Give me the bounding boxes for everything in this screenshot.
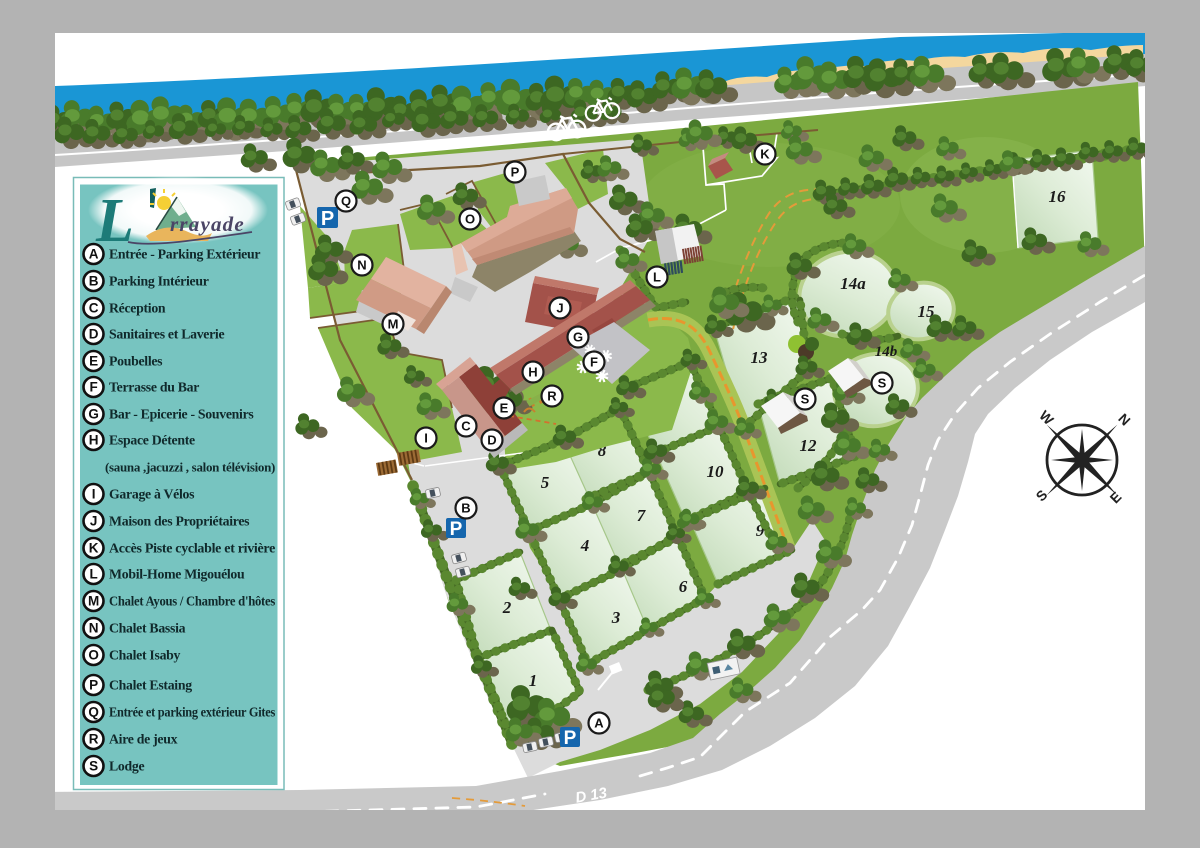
svg-text:I: I bbox=[92, 487, 95, 502]
svg-text:Bar - Epicerie - Souvenirs: Bar - Epicerie - Souvenirs bbox=[109, 407, 254, 422]
svg-text:12: 12 bbox=[800, 436, 818, 455]
svg-text:Maison des Propriétaires: Maison des Propriétaires bbox=[109, 514, 250, 529]
svg-text:Chalet Estaing: Chalet Estaing bbox=[109, 678, 192, 693]
svg-text:6: 6 bbox=[679, 577, 688, 596]
svg-text:F: F bbox=[90, 380, 98, 395]
svg-text:5: 5 bbox=[541, 473, 550, 492]
svg-text:P: P bbox=[564, 728, 577, 749]
svg-text:13: 13 bbox=[751, 348, 769, 367]
svg-text:3: 3 bbox=[611, 608, 621, 627]
svg-text:P: P bbox=[321, 208, 334, 230]
svg-text:10: 10 bbox=[707, 462, 725, 481]
svg-text:Mobil-Home Migouélou: Mobil-Home Migouélou bbox=[109, 567, 245, 582]
svg-text:P: P bbox=[511, 165, 520, 180]
svg-text:Terrasse du Bar: Terrasse du Bar bbox=[109, 380, 199, 395]
svg-text:Chalet Bassia: Chalet Bassia bbox=[109, 621, 186, 636]
svg-text:O: O bbox=[88, 648, 98, 663]
svg-text:R: R bbox=[89, 732, 99, 747]
svg-text:A: A bbox=[89, 247, 99, 262]
svg-text:J: J bbox=[556, 301, 563, 316]
svg-text:Poubelles: Poubelles bbox=[109, 354, 163, 369]
svg-text:N: N bbox=[357, 258, 366, 273]
svg-text:Q: Q bbox=[341, 194, 351, 209]
svg-text:2: 2 bbox=[502, 598, 512, 617]
svg-text:J: J bbox=[90, 514, 97, 529]
svg-text:Sanitaires et Laverie: Sanitaires et Laverie bbox=[109, 327, 224, 342]
svg-text:16: 16 bbox=[1049, 187, 1067, 206]
svg-text:P: P bbox=[89, 678, 98, 693]
svg-text:Aire de jeux: Aire de jeux bbox=[109, 732, 178, 747]
svg-text:Lodge: Lodge bbox=[109, 759, 144, 774]
svg-text:Chalet Isaby: Chalet Isaby bbox=[109, 648, 181, 663]
svg-text:N: N bbox=[89, 621, 98, 636]
svg-text:B: B bbox=[89, 274, 99, 289]
svg-text:S: S bbox=[878, 376, 887, 391]
svg-text:K: K bbox=[760, 147, 770, 162]
svg-text:L: L bbox=[90, 567, 98, 582]
svg-text:Entrée et parking extérieur Gi: Entrée et parking extérieur Gites bbox=[109, 705, 276, 720]
svg-text:E: E bbox=[500, 401, 509, 416]
svg-text:O: O bbox=[465, 212, 475, 227]
svg-text:I: I bbox=[424, 431, 428, 446]
svg-text:E: E bbox=[89, 354, 98, 369]
svg-text:A: A bbox=[594, 716, 604, 731]
svg-text:K: K bbox=[89, 541, 99, 556]
svg-text:Q: Q bbox=[88, 705, 98, 720]
svg-text:(sauna ,jacuzzi , salon télévi: (sauna ,jacuzzi , salon télévision) bbox=[105, 460, 275, 475]
svg-text:Accès Piste cyclable et rivièr: Accès Piste cyclable et rivière bbox=[109, 541, 275, 556]
svg-text:G: G bbox=[88, 407, 98, 422]
svg-text:P: P bbox=[450, 519, 463, 540]
svg-text:rrayade: rrayade bbox=[170, 212, 245, 236]
svg-text:Réception: Réception bbox=[109, 301, 166, 316]
svg-text:S: S bbox=[801, 392, 810, 407]
svg-text:Chalet Ayous / Chambre d'hôtes: Chalet Ayous / Chambre d'hôtes bbox=[109, 594, 276, 609]
svg-text:Entrée - Parking Extérieur: Entrée - Parking Extérieur bbox=[109, 247, 260, 262]
svg-text:R: R bbox=[547, 389, 557, 404]
svg-text:L: L bbox=[653, 270, 661, 285]
svg-text:F: F bbox=[590, 355, 598, 370]
svg-text:L: L bbox=[95, 187, 134, 255]
svg-text:C: C bbox=[461, 419, 471, 434]
svg-text:Parking Intérieur: Parking Intérieur bbox=[109, 274, 209, 289]
svg-text:14a: 14a bbox=[840, 274, 866, 293]
svg-text:M: M bbox=[388, 317, 399, 332]
svg-text:M: M bbox=[88, 594, 99, 609]
svg-text:S: S bbox=[89, 759, 98, 774]
svg-text:B: B bbox=[461, 501, 470, 516]
svg-text:Espace Détente: Espace Détente bbox=[109, 433, 195, 448]
svg-text:H: H bbox=[89, 433, 98, 448]
svg-text:H: H bbox=[528, 365, 537, 380]
svg-text:4: 4 bbox=[580, 536, 590, 555]
svg-text:D: D bbox=[89, 327, 99, 342]
svg-text:Garage à Vélos: Garage à Vélos bbox=[109, 487, 195, 502]
svg-text:G: G bbox=[573, 330, 583, 345]
svg-text:C: C bbox=[89, 301, 99, 316]
svg-text:D: D bbox=[487, 433, 496, 448]
svg-text:1: 1 bbox=[529, 671, 538, 690]
